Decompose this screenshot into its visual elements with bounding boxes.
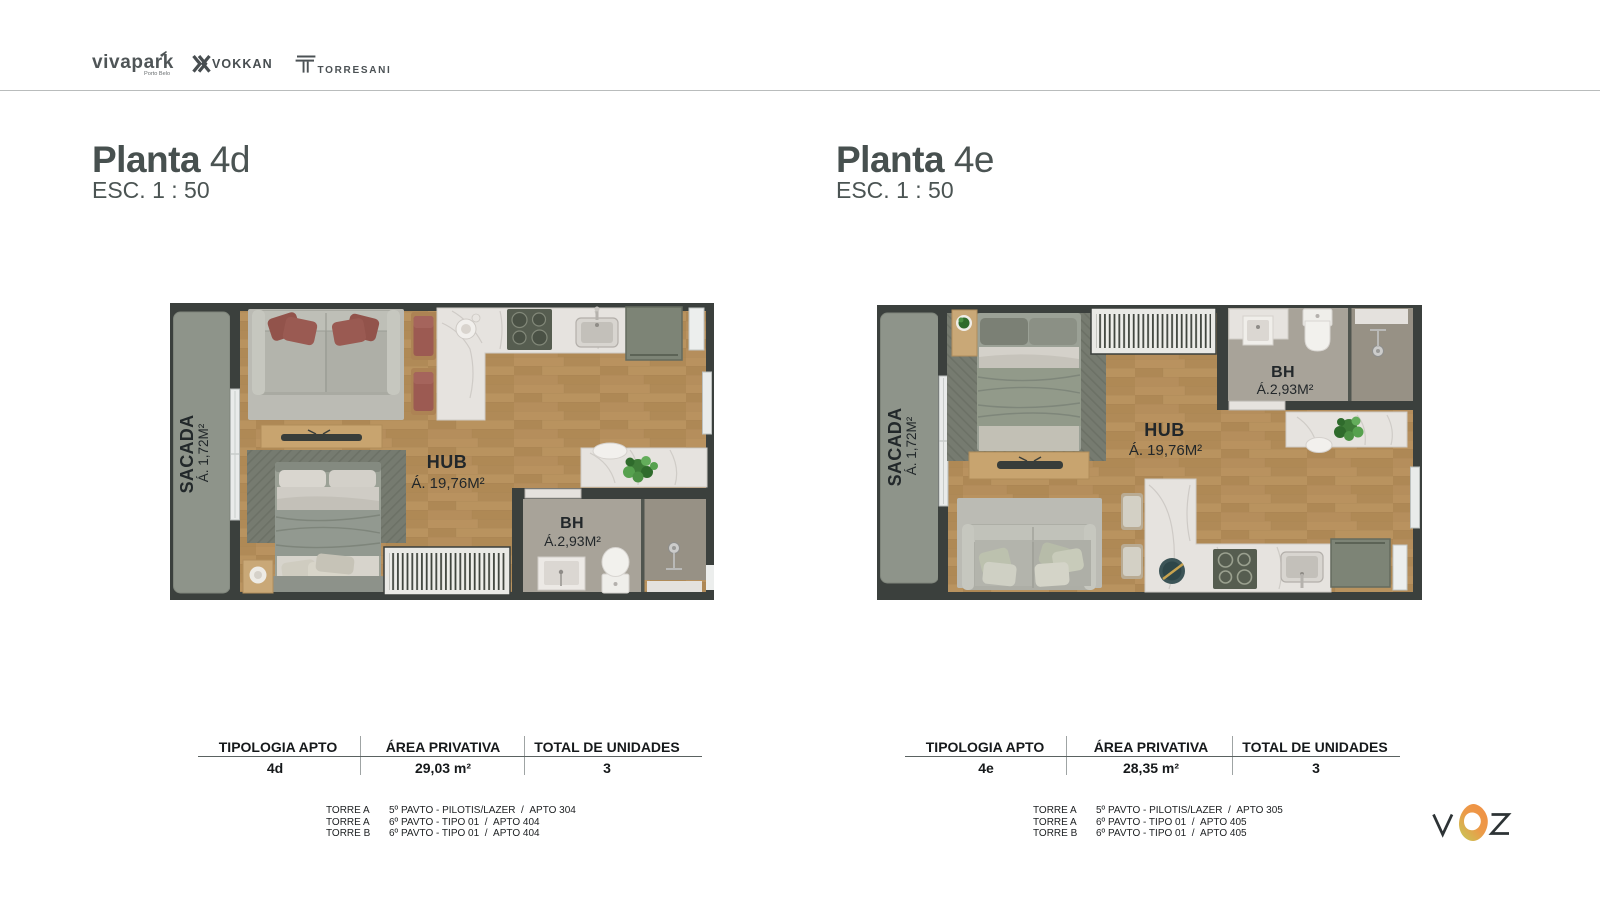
svg-text:Á.2,93M²: Á.2,93M²: [544, 533, 601, 549]
svg-text:Porto Belo: Porto Belo: [144, 71, 170, 77]
svg-text:Á.2,93M²: Á.2,93M²: [1257, 381, 1314, 397]
svg-text:SACADA: SACADA: [885, 408, 905, 487]
svg-text:Á. 19,76M²: Á. 19,76M²: [1129, 442, 1202, 459]
svg-text:Á. 1,72M²: Á. 1,72M²: [904, 416, 919, 475]
svg-text:Á. 19,76M²: Á. 19,76M²: [411, 475, 484, 492]
svg-text:HUB: HUB: [1144, 420, 1185, 440]
svg-text:TORRESANI: TORRESANI: [318, 65, 392, 76]
svg-text:HUB: HUB: [427, 452, 468, 472]
svg-text:VOKKAN: VOKKAN: [212, 57, 273, 71]
svg-text:BH: BH: [560, 515, 584, 532]
svg-text:SACADA: SACADA: [177, 415, 197, 494]
svg-text:Á. 1,72M²: Á. 1,72M²: [196, 423, 211, 482]
svg-text:BH: BH: [1271, 364, 1295, 381]
